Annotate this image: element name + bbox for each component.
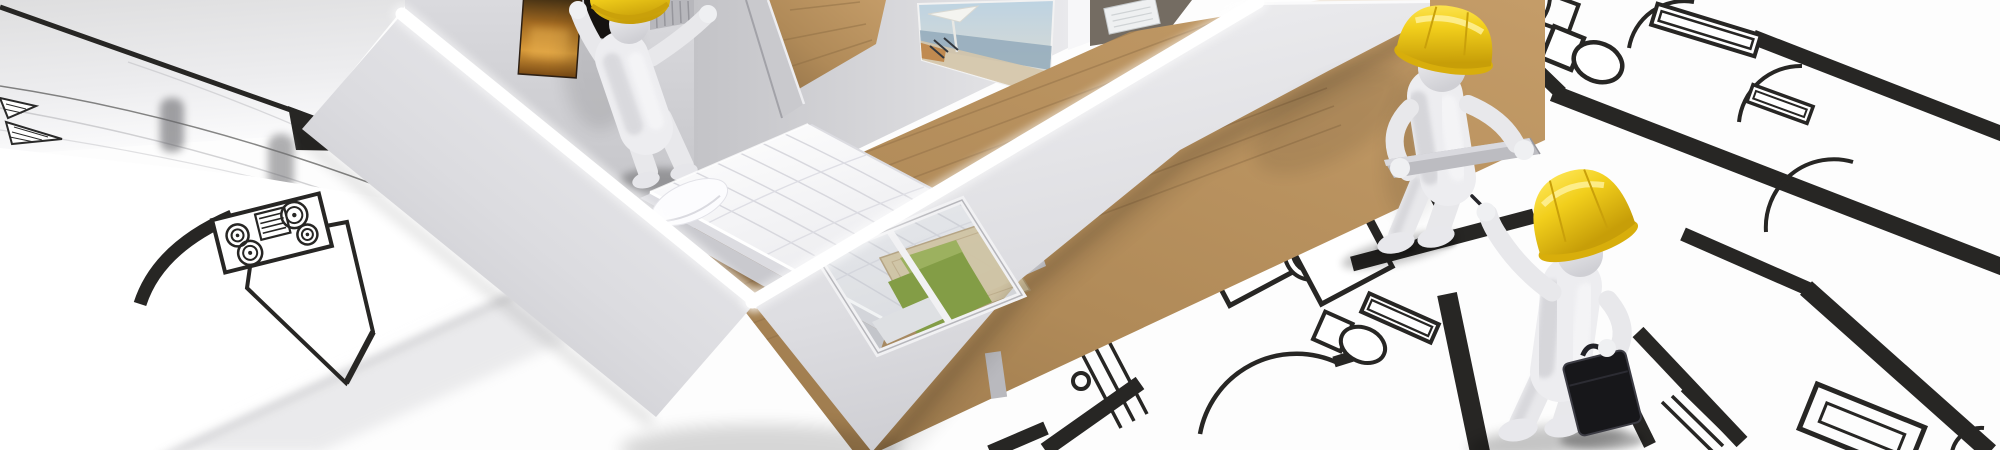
wall-edge-strip <box>1068 0 1090 50</box>
hand <box>1477 203 1496 222</box>
banner-illustration <box>0 0 2000 450</box>
hand <box>1514 140 1534 160</box>
hand <box>1598 339 1616 357</box>
scene-canvas <box>0 0 2000 450</box>
hand <box>1390 158 1410 178</box>
cast-shadow <box>160 98 184 152</box>
